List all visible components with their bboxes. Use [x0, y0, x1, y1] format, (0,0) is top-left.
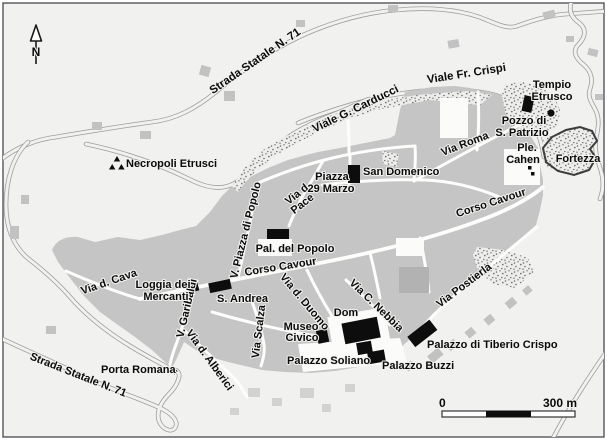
city-map: Strada Statale N. 71 Viale Fr. Crispi Vi…: [0, 0, 607, 440]
label-piazza-29-marzo: Piazza29 Marzo: [307, 171, 354, 195]
label-fortezza: Fortezza: [556, 153, 602, 165]
label-loggia-dei-mercanti: Loggia deiMercanti: [136, 279, 191, 303]
label-necropoli-etrusci: Necropoli Etrusci: [126, 158, 217, 170]
label-s-andrea: S. Andrea: [217, 293, 269, 305]
label-dom: Dom: [334, 307, 359, 319]
compass-n-label: N: [32, 45, 41, 59]
label-museo-civico: MuseoCivico: [284, 321, 319, 344]
building-san-domenico: [348, 165, 360, 183]
label-porta-romana: Porta Romana: [101, 364, 176, 376]
marker-pozzo-s-patrizio: [547, 109, 554, 116]
label-pozzo-s-patrizio: Pozzo diS. Patrizio: [495, 115, 548, 139]
label-tempio-etrusco: TempioEtrusco: [532, 79, 573, 103]
scale-start-label: 0: [439, 396, 446, 410]
label-palazzo-soliano: Palazzo Soliano: [287, 355, 370, 367]
building-pal-del-popolo: [267, 229, 289, 239]
label-pal-del-popolo: Pal. del Popolo: [256, 243, 335, 255]
label-palazzo-di-tiberio-crispo: Palazzo di Tiberio Crispo: [427, 339, 558, 351]
label-palazzo-buzzi: Palazzo Buzzi: [382, 360, 454, 372]
scale-end-label: 300 m: [543, 396, 577, 410]
city-map-canvas: Strada Statale N. 71 Viale Fr. Crispi Vi…: [0, 0, 607, 440]
label-san-domenico: San Domenico: [363, 166, 440, 178]
